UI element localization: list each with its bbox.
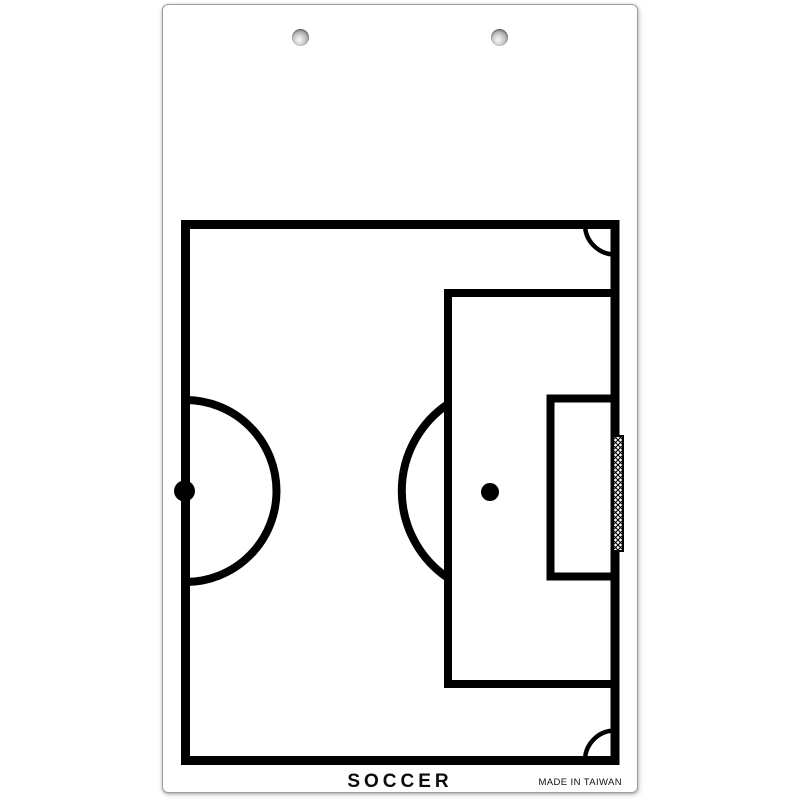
soccer-field-diagram bbox=[163, 5, 637, 792]
penalty-spot-dot bbox=[481, 483, 499, 501]
penalty-area-line bbox=[448, 293, 615, 684]
center-circle-arc bbox=[186, 400, 277, 582]
penalty-arc bbox=[402, 404, 448, 578]
goal-net bbox=[613, 436, 623, 551]
coaching-board: SOCCER MADE IN TAIWAN bbox=[162, 4, 638, 793]
center-mark-dot bbox=[174, 481, 195, 502]
goal-area-line bbox=[551, 399, 616, 577]
origin-label: MADE IN TAIWAN bbox=[538, 777, 622, 788]
